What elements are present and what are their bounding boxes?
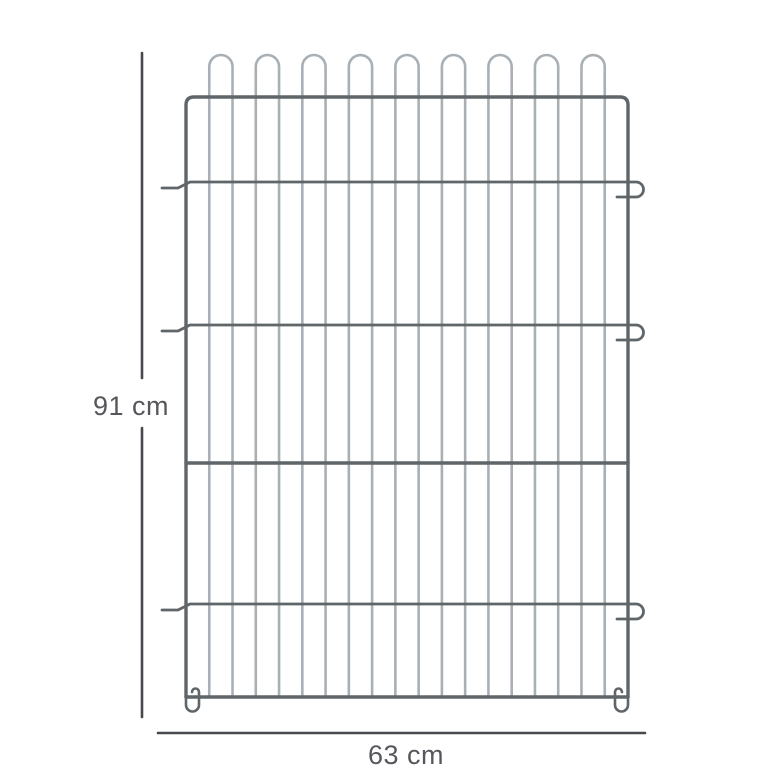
- dimension-lines: [142, 53, 645, 733]
- height-dimension-label: 91 cm: [93, 391, 169, 421]
- wire-fence-panel: [162, 55, 644, 712]
- fence-panel-illustration: 91 cm 63 cm: [0, 0, 780, 780]
- product-dimension-diagram: 91 cm 63 cm: [0, 0, 780, 780]
- width-dimension-label: 63 cm: [368, 740, 444, 770]
